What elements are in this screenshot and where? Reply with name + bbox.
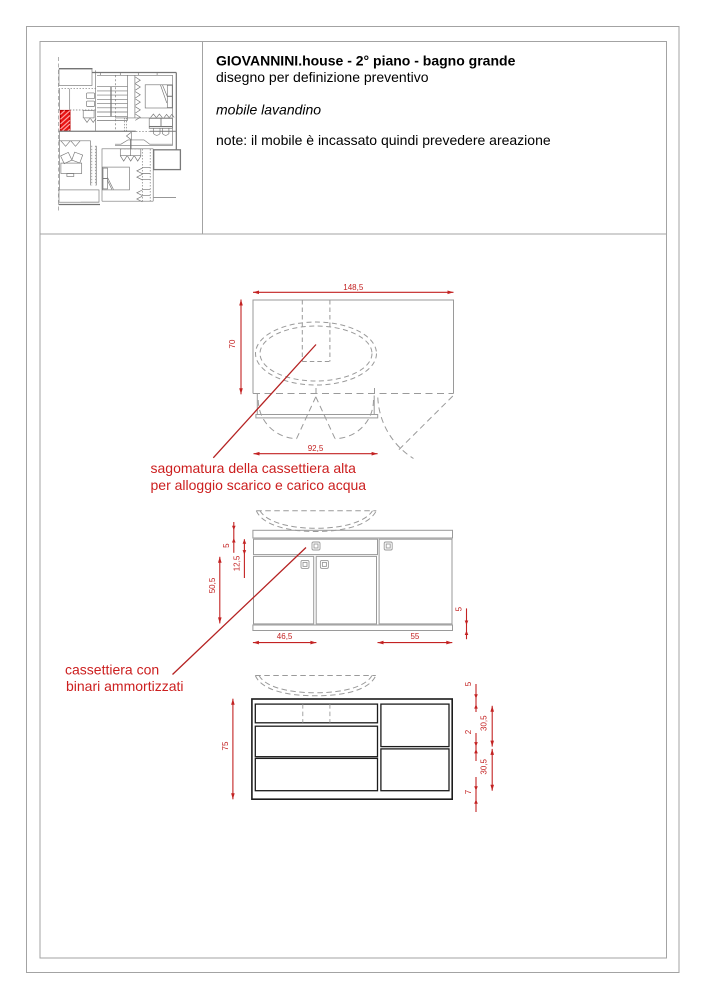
- svg-text:55: 55: [410, 632, 419, 641]
- svg-text:70: 70: [228, 339, 237, 348]
- svg-text:5: 5: [455, 606, 464, 611]
- svg-text:46,5: 46,5: [277, 632, 293, 641]
- svg-text:7: 7: [464, 789, 473, 794]
- svg-text:92,5: 92,5: [308, 444, 324, 453]
- svg-text:30,5: 30,5: [479, 758, 488, 774]
- svg-text:50,5: 50,5: [208, 577, 217, 593]
- svg-text:5: 5: [464, 681, 473, 686]
- svg-text:disegno per definizione preven: disegno per definizione preventivo: [216, 69, 429, 85]
- svg-text:sagomatura della cassettiera a: sagomatura della cassettiera alta: [151, 460, 357, 476]
- svg-text:binari ammortizzati: binari ammortizzati: [66, 678, 183, 694]
- svg-text:12,5: 12,5: [233, 555, 242, 571]
- svg-text:5: 5: [222, 543, 231, 548]
- svg-text:per alloggio scarico e carico: per alloggio scarico e carico acqua: [151, 477, 367, 493]
- svg-text:148,5: 148,5: [343, 283, 364, 292]
- svg-text:75: 75: [221, 741, 230, 750]
- svg-text:cassettiera con: cassettiera con: [65, 662, 159, 678]
- svg-text:mobile lavandino: mobile lavandino: [216, 102, 321, 118]
- svg-text:2: 2: [464, 729, 473, 734]
- svg-text:note: il mobile è incassato qu: note: il mobile è incassato quindi preve…: [216, 132, 551, 148]
- svg-text:GIOVANNINI.house - 2° piano -: GIOVANNINI.house - 2° piano - bagno gran…: [216, 53, 516, 69]
- svg-text:30,5: 30,5: [479, 715, 488, 731]
